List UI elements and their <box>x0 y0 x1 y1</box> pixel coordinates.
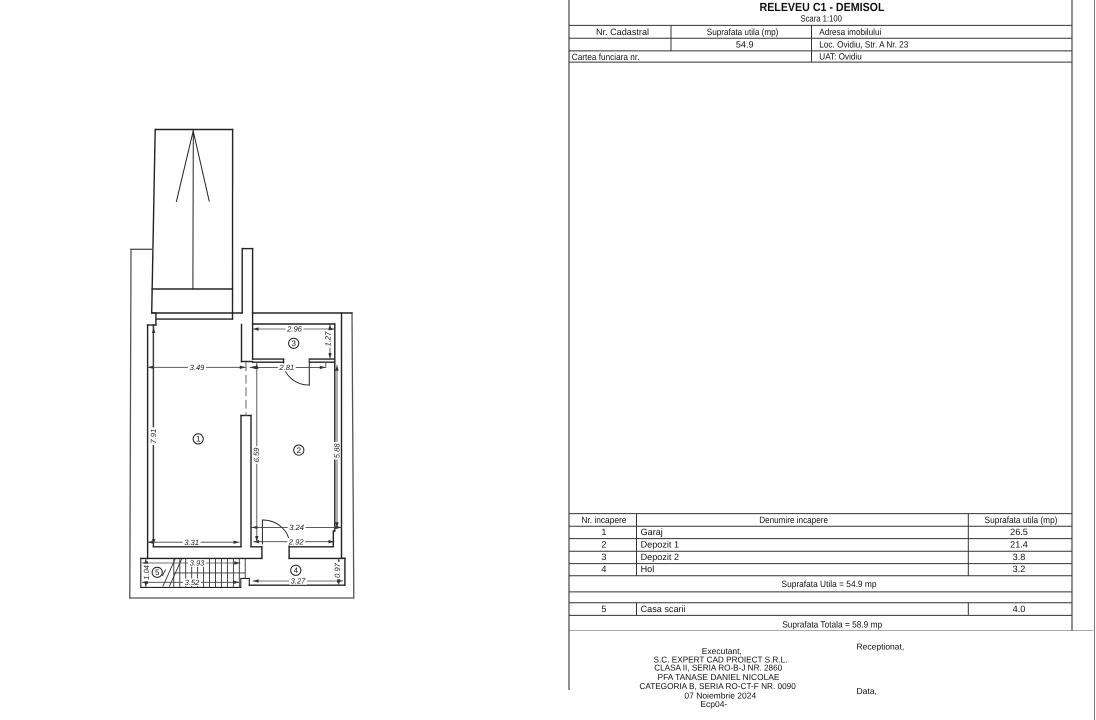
svg-text:Depozit 2: Depozit 2 <box>641 552 679 562</box>
svg-text:Suprafata Totala = 58.9 mp: Suprafata Totala = 58.9 mp <box>782 619 882 629</box>
svg-text:2.81: 2.81 <box>278 363 294 372</box>
svg-text:2.92: 2.92 <box>288 537 305 546</box>
svg-text:CATEGORIA B, SERIA RO-CT-F NR.: CATEGORIA B, SERIA RO-CT-F NR. 0090 <box>639 681 796 691</box>
svg-text:Nr. incapere: Nr. incapere <box>581 515 626 525</box>
svg-text:26.5: 26.5 <box>1010 527 1028 537</box>
svg-text:UAT: Ovidiu: UAT: Ovidiu <box>819 52 862 62</box>
svg-text:54.9: 54.9 <box>736 40 754 50</box>
svg-text:Ecp04-: Ecp04- <box>700 699 727 709</box>
svg-text:1.04: 1.04 <box>142 565 151 580</box>
svg-text:3.52: 3.52 <box>185 578 201 587</box>
svg-text:6.59: 6.59 <box>252 447 261 463</box>
svg-text:Garaj: Garaj <box>641 527 663 537</box>
svg-text:Casa scarii: Casa scarii <box>641 604 686 614</box>
svg-text:Depozit 1: Depozit 1 <box>641 540 679 550</box>
svg-text:7.91: 7.91 <box>149 429 158 444</box>
svg-text:Loc. Ovidiu, Str. A Nr. 23: Loc. Ovidiu, Str. A Nr. 23 <box>819 40 908 50</box>
svg-text:3.2: 3.2 <box>1013 564 1026 574</box>
svg-text:3.31: 3.31 <box>184 538 199 547</box>
svg-text:4.0: 4.0 <box>1013 604 1026 614</box>
svg-text:2: 2 <box>601 540 606 550</box>
svg-text:3: 3 <box>601 552 606 562</box>
svg-text:Hol: Hol <box>641 564 655 574</box>
svg-text:4: 4 <box>294 566 299 575</box>
svg-text:Suprafata utila (mp): Suprafata utila (mp) <box>985 515 1058 525</box>
svg-text:2.96: 2.96 <box>286 325 303 334</box>
svg-text:3.24: 3.24 <box>289 523 304 532</box>
svg-text:Denumire incapere: Denumire incapere <box>759 515 828 525</box>
svg-text:Scara 1:100: Scara 1:100 <box>800 13 842 23</box>
svg-text:Adresa imobilului: Adresa imobilului <box>819 27 881 37</box>
svg-text:1: 1 <box>196 435 201 444</box>
svg-text:4: 4 <box>601 564 606 574</box>
svg-text:5.88: 5.88 <box>333 443 342 459</box>
svg-text:0.97: 0.97 <box>333 562 342 578</box>
svg-text:3.8: 3.8 <box>1013 552 1026 562</box>
svg-text:Suprafata utila (mp): Suprafata utila (mp) <box>707 27 779 37</box>
svg-text:3.49: 3.49 <box>190 363 206 372</box>
svg-text:3: 3 <box>291 339 296 348</box>
svg-text:Cartea funciara nr.: Cartea funciara nr. <box>572 52 640 62</box>
svg-text:3.27: 3.27 <box>291 577 307 586</box>
svg-text:1: 1 <box>601 527 606 537</box>
svg-text:Suprafata Utila = 54.9 mp: Suprafata Utila = 54.9 mp <box>782 579 877 589</box>
svg-text:1.27: 1.27 <box>323 331 332 347</box>
svg-text:3.93: 3.93 <box>190 559 206 568</box>
svg-text:Data,: Data, <box>857 686 877 696</box>
svg-text:RELEVEU C1 - DEMISOL: RELEVEU C1 - DEMISOL <box>760 0 885 14</box>
svg-text:5: 5 <box>155 568 160 577</box>
svg-text:21.4: 21.4 <box>1010 540 1028 550</box>
svg-text:Receptionat,: Receptionat, <box>857 642 905 652</box>
svg-text:Nr. Cadastral: Nr. Cadastral <box>596 27 649 37</box>
svg-text:CLASA II, SERIA RO-B-J NR. 286: CLASA II, SERIA RO-B-J NR. 2860 <box>654 662 782 672</box>
svg-text:5: 5 <box>601 604 606 614</box>
svg-text:2: 2 <box>297 446 302 455</box>
